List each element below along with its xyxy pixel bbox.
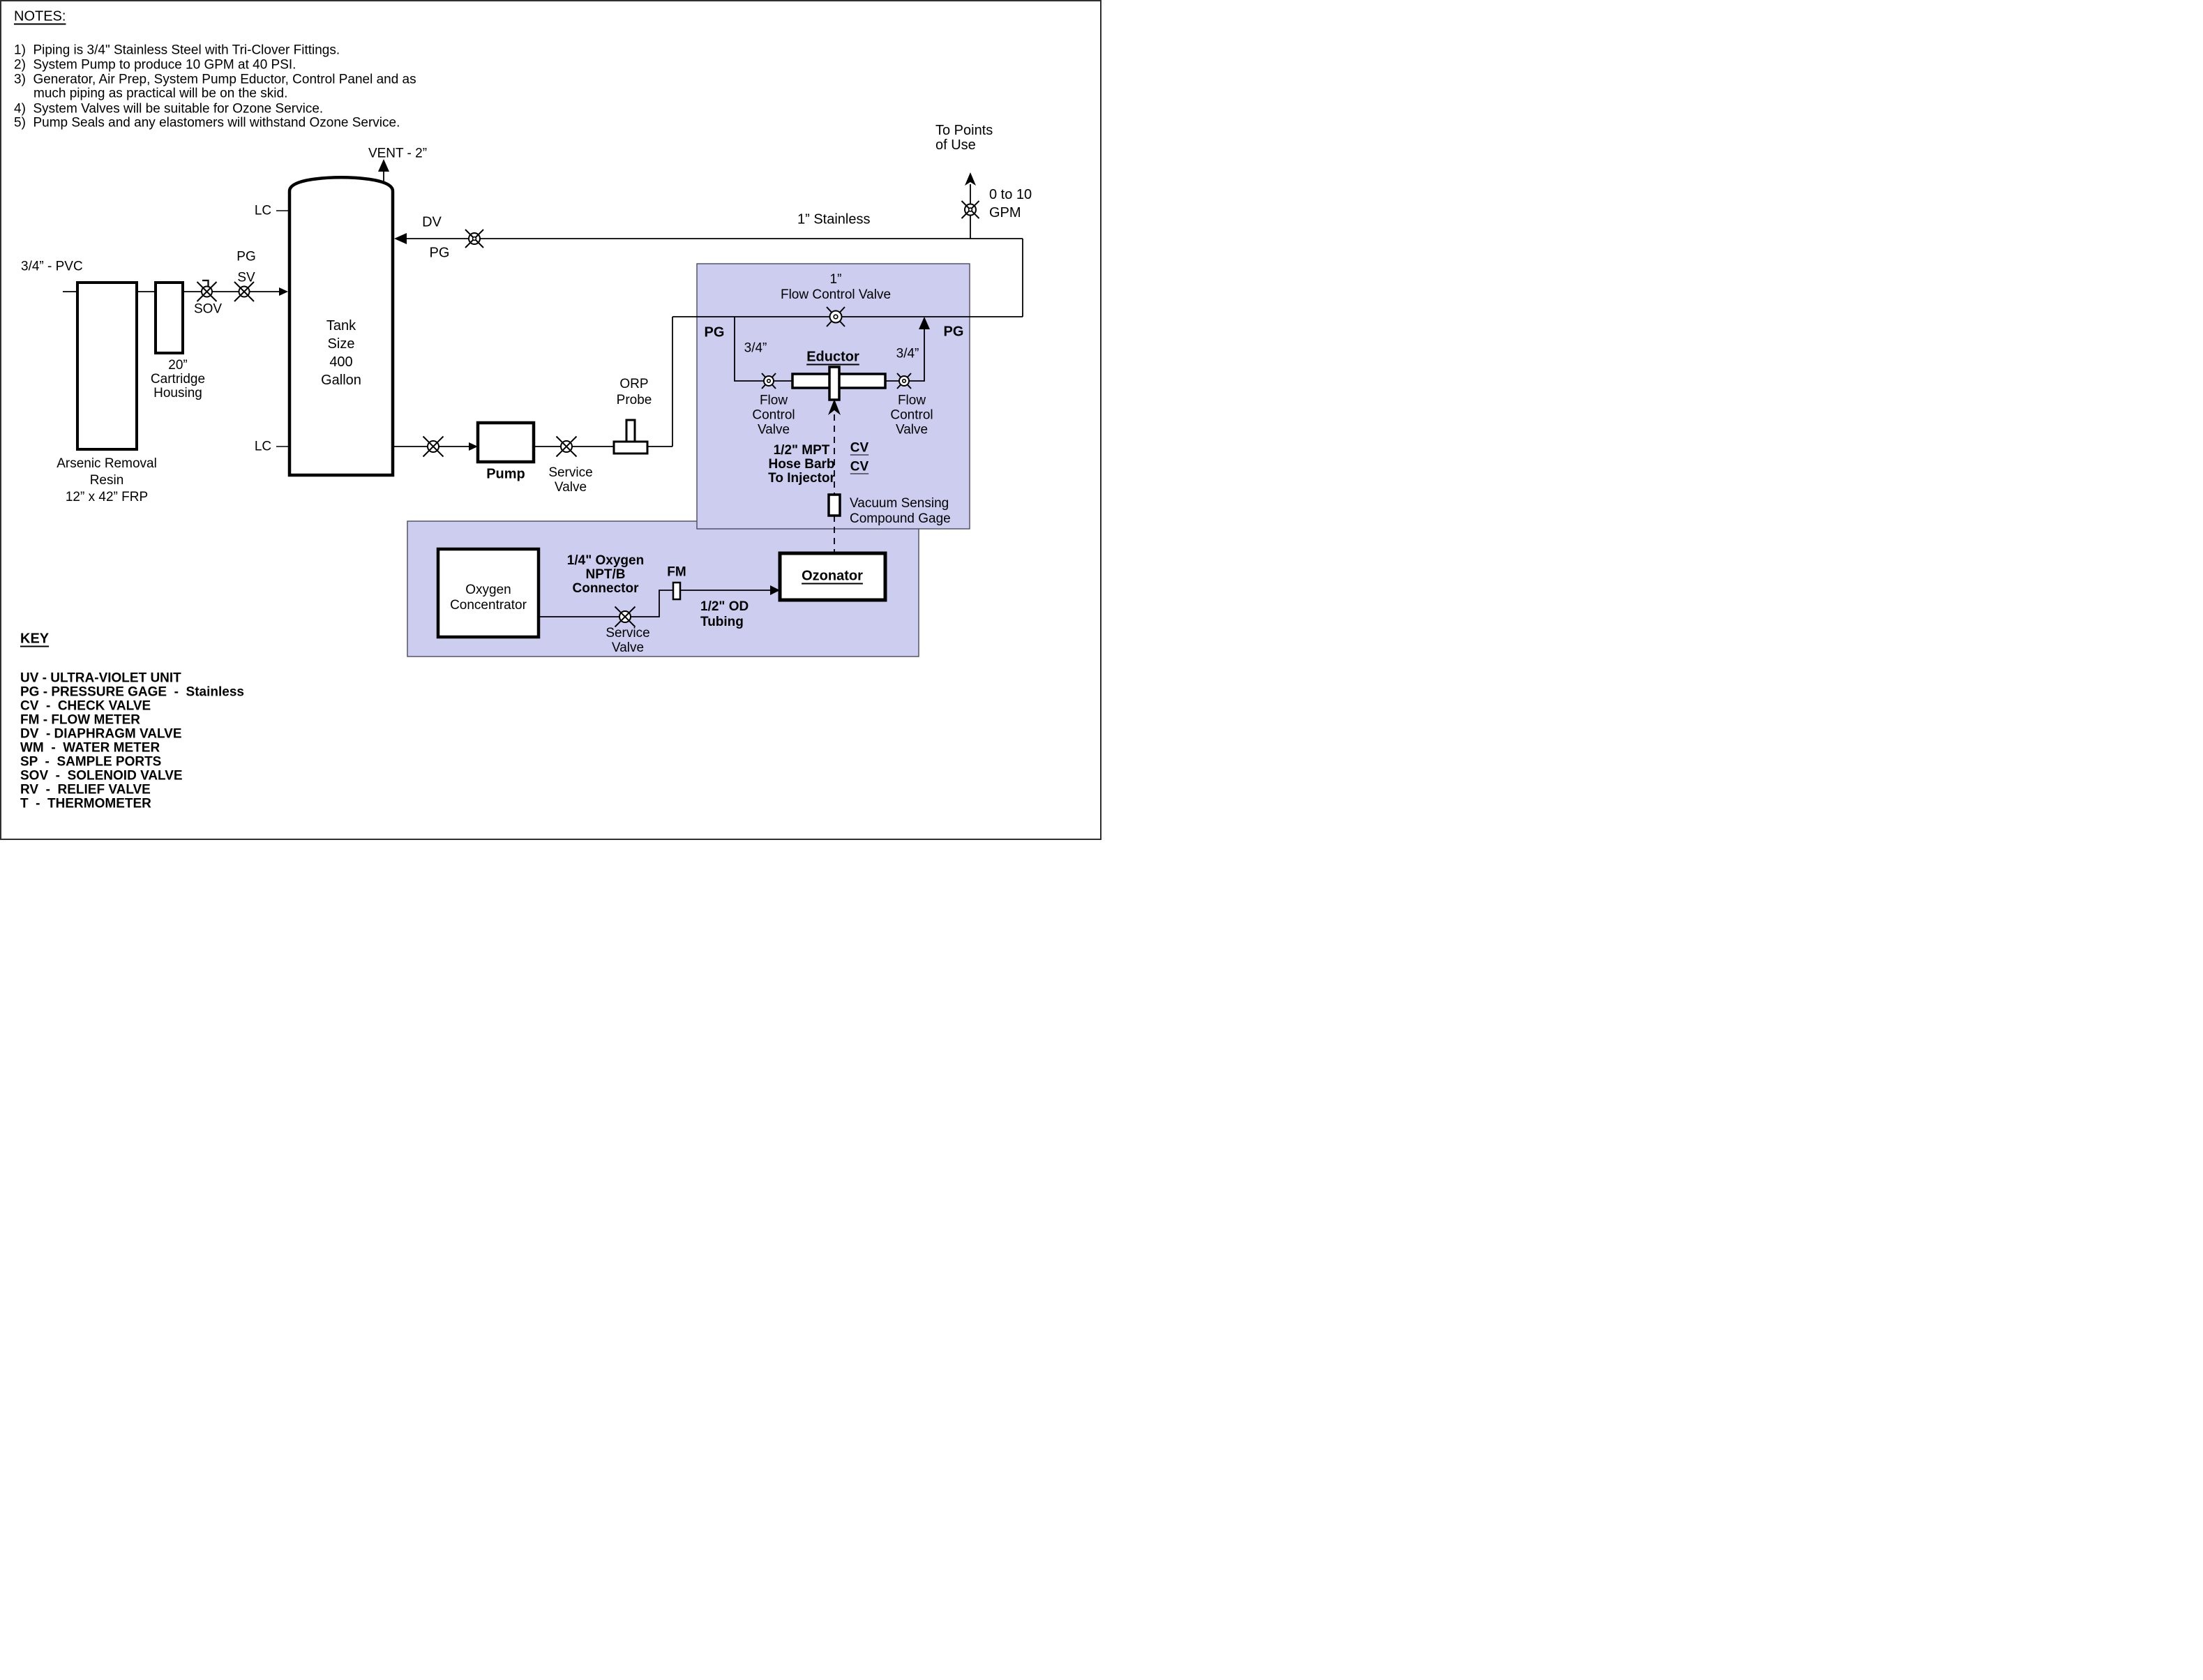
feed-pipe-label: 3/4” - PVC [21,260,83,274]
pump-label: Pump [486,467,525,482]
fcv-right-label: Flow Control Valve [890,393,933,437]
note-line: 1) Piping is 3/4" Stainless Steel with T… [14,43,340,58]
cv-label-2: CV [850,460,869,474]
points-of-use-arrow-icon [965,172,976,186]
dv-label: DV [422,216,442,230]
fcv-left-label: Flow Control Valve [752,393,795,437]
lc-bottom-label: LC [255,440,271,454]
skid-pg-left-label: PG [705,326,725,340]
sov-valve-icon [197,280,217,301]
oxygen-connector-label: 1/4" Oxygen NPT/B Connector [567,554,644,596]
key-entry: FM - FLOW METER [20,713,140,728]
orp-probe-label: ORP Probe [617,376,652,408]
key-entry: SOV - SOLENOID VALVE [20,769,183,783]
note-line: 3) Generator, Air Prep, System Pump Educ… [14,73,416,87]
key-entry: DV - DIAPHRAGM VALVE [20,727,182,742]
inlet-pg-label: PG [236,250,255,264]
tank-label: Tank Size 400 Gallon [321,317,361,389]
branch-left-size-label: 3/4” [744,341,767,356]
tubing-label: 1/2" OD Tubing [700,599,749,630]
cartridge-vessel [156,283,183,353]
fm-label: FM [667,565,686,580]
oxygen-service-valve-label: Service Valve [606,626,649,655]
fm-symbol [673,583,680,599]
right-flow-control-valve-icon [897,373,911,389]
key-entry: PG - PRESSURE GAGE - Stainless [20,685,244,700]
key-entry: RV - RELIEF VALVE [20,783,151,797]
vacuum-gauge-label: Vacuum Sensing Compound Gage [850,496,951,527]
left-flow-control-valve-icon [762,373,776,389]
note-line: 2) System Pump to produce 10 GPM at 40 P… [14,58,296,73]
service-valve-label: Service Valve [548,465,592,495]
vent-arrow-icon [378,159,389,172]
skid-pg-right-label: PG [944,325,964,340]
tank-inlet-arrow-icon [279,287,288,296]
return-pg-label: PG [430,246,450,261]
key-entry: SP - SAMPLE PORTS [20,755,161,770]
orp-probe-symbol [614,420,647,453]
lc-top-label: LC [255,204,271,218]
eductor-label: Eductor [806,350,859,365]
main-fcv-label: 1” Flow Control Valve [781,272,891,303]
vacuum-gauge-symbol [829,495,840,516]
cv-label-1: CV [850,441,869,456]
note-line: much piping as practical will be on the … [33,87,287,101]
key-entry: T - THERMOMETER [20,797,151,811]
stainless-pipe-label: 1” Stainless [797,213,871,227]
notes-title: NOTES: [14,10,66,24]
tank-return-arrow-icon [394,233,407,244]
branch-right-size-label: 3/4” [896,347,919,361]
oxygen-concentrator-label: Oxygen Concentrator [450,583,527,613]
key-entry: WM - WATER METER [20,741,160,756]
key-title: KEY [20,632,49,647]
ozonator-label: Ozonator [802,569,863,584]
gpm-valve-icon [962,201,979,218]
cartridge-vessel-label: 20” Cartridge Housing [151,359,205,400]
to-points-of-use-label: To Points of Use [935,123,993,153]
arsenic-vessel-label: Arsenic Removal Resin 12” x 42” FRP [57,456,157,506]
pump-body [478,423,534,462]
key-entry: CV - CHECK VALVE [20,699,151,714]
key-entry: UV - ULTRA-VIOLET UNIT [20,671,181,686]
arsenic-vessel [77,283,137,449]
vent-label: VENT - 2” [368,147,427,161]
sov-label: SOV [194,302,222,317]
note-line: 5) Pump Seals and any elastomers will wi… [14,116,400,130]
diagram-page: NOTES: 1) Piping is 3/4" Stainless Steel… [0,0,1101,840]
injector-label: 1/2" MPT Hose Barb To Injector [768,444,835,486]
note-line: 4) System Valves will be suitable for Oz… [14,102,323,117]
gpm-label: 0 to 10 GPM [989,186,1032,222]
inlet-sv-label: SV [237,271,255,285]
